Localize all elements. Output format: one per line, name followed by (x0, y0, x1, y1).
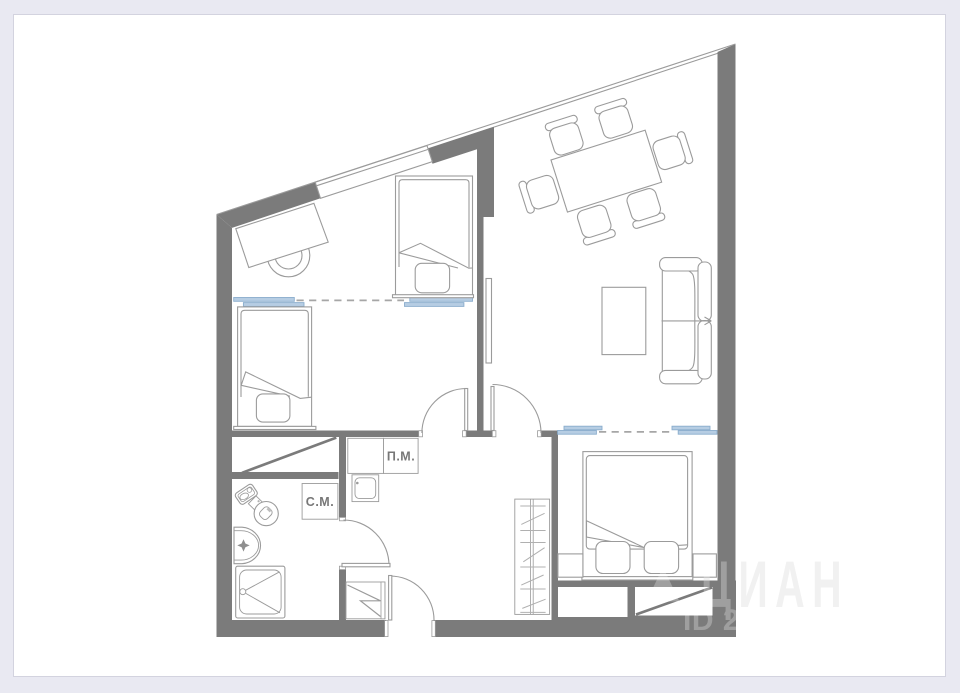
svg-text:П.М.: П.М. (387, 449, 415, 463)
svg-text:ID 2951: ID 2951 (683, 604, 792, 637)
svg-text:С.М.: С.М. (306, 495, 334, 509)
